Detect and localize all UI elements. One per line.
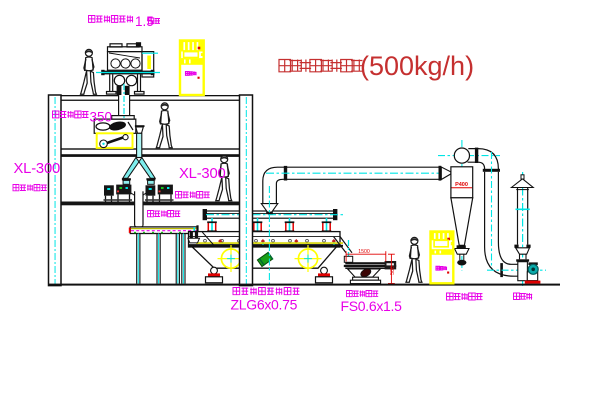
svg-text:500: 500 (390, 266, 396, 275)
svg-text:XL-300: XL-300 (14, 161, 61, 177)
svg-text:XL-300: XL-300 (179, 166, 226, 182)
svg-text:FS0.6x1.5: FS0.6x1.5 (341, 298, 403, 314)
svg-text:ZLG6x0.75: ZLG6x0.75 (231, 297, 298, 313)
svg-text:350: 350 (90, 110, 113, 125)
svg-text:(500kg/h): (500kg/h) (360, 51, 474, 81)
svg-text:1500: 1500 (358, 249, 370, 255)
